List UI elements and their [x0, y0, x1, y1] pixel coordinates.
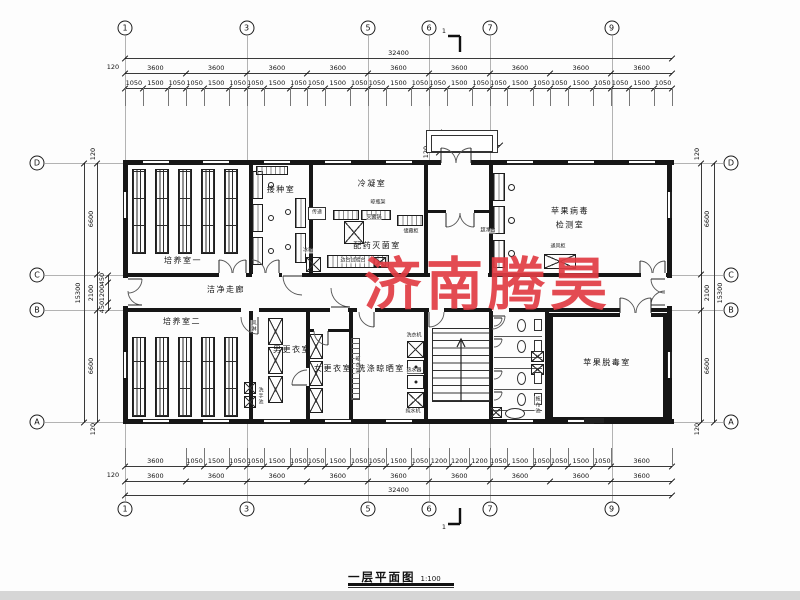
door-arc — [651, 291, 665, 305]
grid-bubble-top: 7 — [483, 21, 498, 36]
cistern — [534, 319, 542, 331]
window — [507, 160, 533, 165]
dim-value: 1050 — [169, 80, 186, 87]
dim-extension — [449, 448, 450, 466]
dim-extension — [429, 88, 430, 106]
watermark-text: 济南腾昊 — [364, 257, 612, 314]
dim-extension — [429, 448, 430, 466]
grid-bubble-top: 9 — [604, 21, 619, 36]
equipment-box — [407, 392, 424, 408]
dim-extension — [593, 88, 594, 106]
dim-value: 120 — [107, 472, 119, 479]
drawing-scale: 1:100 — [421, 575, 441, 583]
dim-line — [84, 163, 85, 422]
dim-value: 3600 — [208, 473, 225, 480]
dim-value: 3600 — [633, 65, 650, 72]
wall — [424, 311, 428, 421]
dim-value: 120 — [107, 64, 119, 71]
dim-value: 1200 — [471, 458, 488, 465]
dim-value: 1050 — [551, 458, 568, 465]
wall — [125, 273, 219, 277]
fume-hood-label: 通风柜 — [550, 245, 565, 250]
door-arc — [494, 392, 502, 400]
dim-extension — [411, 88, 412, 106]
grid-bubble-bottom: 1 — [118, 502, 133, 517]
title-block: 一层平面图1:100 — [348, 566, 441, 585]
dim-value: 3600 — [147, 473, 164, 480]
dim-value: 3600 — [390, 65, 407, 72]
dim-value: 3600 — [147, 65, 164, 72]
dim-value: 1050 — [551, 80, 568, 87]
dim-value: 15300 — [717, 282, 724, 303]
wall — [427, 210, 446, 213]
grid-bubble-right: A — [724, 415, 739, 430]
dim-value: 1050 — [229, 80, 246, 87]
dim-line — [125, 58, 672, 59]
dim-value: 1050 — [594, 80, 611, 87]
door-arc — [233, 260, 246, 273]
cistern — [534, 340, 542, 352]
section-marker-label: 1 — [442, 524, 446, 531]
dim-value: 2100 — [704, 284, 711, 301]
dim-value: 3600 — [390, 473, 407, 480]
dim-value: 3600 — [451, 65, 468, 72]
room-label-clean-corridor: 洁净走廊 — [207, 283, 245, 297]
grid-bubble-right: D — [724, 156, 739, 171]
dim-extension — [507, 88, 508, 106]
bottle-rack-label: 晾瓶架 — [370, 201, 385, 206]
room-label-culture-room-2: 培养室二 — [163, 315, 201, 329]
bench — [493, 173, 505, 201]
bench — [397, 215, 423, 226]
window — [386, 160, 412, 165]
shelf-rack — [132, 337, 146, 417]
dim-extension — [143, 88, 144, 106]
equipment-box — [244, 396, 256, 408]
wall — [310, 329, 314, 332]
section-cut-marker-top — [448, 36, 460, 52]
dim-value: 3600 — [329, 473, 346, 480]
dim-extension — [204, 448, 205, 466]
dim-value: 1200 — [451, 458, 468, 465]
door-arc — [128, 279, 142, 293]
dim-value: 3600 — [573, 473, 590, 480]
equipment-box — [309, 334, 323, 359]
dim-value: 1050 — [369, 80, 386, 87]
dim-value: 1050 — [229, 458, 246, 465]
dim-value: 1050 — [351, 458, 368, 465]
stool — [285, 244, 291, 250]
door-arc — [620, 298, 635, 313]
dim-value: 3600 — [329, 65, 346, 72]
dim-line — [125, 88, 672, 89]
dim-extension — [629, 88, 630, 106]
window — [629, 160, 655, 165]
dim-extension — [550, 88, 551, 106]
grid-bubble-top: 3 — [239, 21, 254, 36]
dim-extension — [125, 88, 126, 106]
door-arc — [494, 339, 502, 347]
dim-value: 6600 — [88, 358, 95, 375]
dim-extension — [507, 448, 508, 466]
shelf-rack — [178, 337, 192, 417]
section-cut-marker-bottom — [448, 508, 460, 524]
shelf-rack — [178, 169, 192, 254]
dim-value: 1050 — [412, 458, 429, 465]
toilet — [517, 340, 526, 353]
window — [325, 419, 351, 424]
dim-value: 6600 — [704, 358, 711, 375]
door-arc — [653, 261, 665, 273]
window — [264, 160, 290, 165]
door-arc — [128, 291, 142, 305]
bench — [333, 210, 359, 220]
dim-value: 1500 — [208, 458, 225, 465]
dim-value: 1500 — [512, 80, 529, 87]
dim-value: 1500 — [269, 458, 286, 465]
washing-machine-label: 洗衣机 — [406, 334, 421, 339]
room-label-mens-changing-room: 男更衣室 — [273, 343, 311, 357]
dim-value: 1050 — [186, 80, 203, 87]
dim-value: 1050 — [612, 80, 629, 87]
stool — [508, 217, 515, 224]
window-sill — [584, 418, 604, 423]
room-label-culture-room-1: 培养室一 — [164, 254, 202, 268]
dim-extension — [672, 448, 673, 466]
dim-line — [125, 73, 672, 74]
dim-extension — [672, 88, 673, 106]
grid-bubble-right: C — [724, 268, 739, 283]
dim-value: 120 — [694, 423, 701, 435]
dim-value: 1050 — [369, 458, 386, 465]
dim-extension — [264, 88, 265, 106]
equipment-box — [309, 388, 323, 413]
pure-water-label: 纯水机 — [405, 410, 420, 415]
dim-value: 1050 — [308, 458, 325, 465]
clean-bench-label: 超净台 — [480, 229, 495, 234]
dim-value: 1050 — [490, 80, 507, 87]
dim-value: 1050 — [473, 80, 490, 87]
grid-line-right — [672, 163, 723, 164]
dim-value: 3600 — [633, 458, 650, 465]
door-arc — [266, 260, 279, 273]
stool — [268, 215, 274, 221]
bench — [256, 166, 288, 175]
room-label-inoculation-room: 接种室 — [267, 183, 296, 197]
dim-value: 1050 — [655, 80, 672, 87]
window — [386, 419, 412, 424]
wall — [123, 160, 128, 278]
dim-value: 1500 — [512, 458, 529, 465]
partition — [494, 336, 542, 337]
dim-value: 1050 — [126, 80, 143, 87]
bench — [252, 237, 263, 265]
dim-value: 1050 — [429, 80, 446, 87]
dim-value: 1500 — [573, 458, 590, 465]
window — [143, 160, 169, 165]
grid-bubble-top: 1 — [118, 21, 133, 36]
dim-value: 3600 — [208, 65, 225, 72]
grid-bubble-left: D — [30, 156, 45, 171]
dim-value: 1500 — [390, 80, 407, 87]
dim-value: 3600 — [451, 473, 468, 480]
dim-line — [125, 481, 672, 482]
side-bench-label: 边台试验台 — [340, 259, 365, 264]
door-arc — [283, 276, 302, 295]
water-heater-box — [407, 375, 424, 389]
storage-cabinet-label: 储藏柜 — [403, 230, 418, 235]
dim-value: 1050 — [594, 458, 611, 465]
grid-bubble-top: 5 — [361, 21, 376, 36]
dim-extension — [125, 448, 126, 466]
dim-value: 1050 — [533, 458, 550, 465]
dim-value: 1200 — [99, 284, 106, 301]
dim-extension — [533, 88, 534, 106]
stool — [285, 209, 291, 215]
door-arc — [460, 213, 474, 227]
dim-value: 1200 — [431, 458, 448, 465]
dim-value: 120 — [90, 148, 97, 160]
dim-extension — [611, 448, 612, 466]
dim-line — [125, 466, 672, 467]
dim-extension — [204, 88, 205, 106]
dim-value: 1500 — [147, 80, 164, 87]
grid-bubble-bottom: 5 — [361, 502, 376, 517]
air-shower-label: 风淋 — [251, 320, 256, 332]
wall — [651, 308, 672, 312]
dim-value: 1500 — [329, 80, 346, 87]
dim-extension — [307, 88, 308, 106]
partition — [494, 389, 542, 390]
dim-extension — [186, 88, 187, 106]
door-arc — [494, 318, 502, 326]
dim-value: 450 — [99, 273, 106, 285]
door-arc — [331, 288, 350, 307]
dim-value: 3600 — [269, 65, 286, 72]
title-underline — [348, 583, 454, 586]
dim-extension — [568, 448, 569, 466]
wash-basin — [505, 408, 525, 419]
dim-value: 3600 — [573, 65, 590, 72]
dim-value: 32400 — [388, 50, 409, 57]
equipment-box — [268, 318, 283, 345]
window — [667, 352, 672, 378]
wall — [279, 273, 282, 277]
door-arc — [494, 371, 502, 379]
wall — [666, 273, 672, 277]
grid-bubble-top: 6 — [422, 21, 437, 36]
toilet — [517, 372, 526, 385]
dim-value: 120 — [694, 148, 701, 160]
dim-value: 3600 — [633, 473, 650, 480]
dim-value: 3600 — [147, 458, 164, 465]
door-arc — [651, 279, 665, 293]
wall — [125, 308, 241, 312]
dim-value: 1500 — [633, 80, 650, 87]
equipment-box — [531, 351, 544, 362]
window — [143, 419, 169, 424]
dim-extension — [490, 88, 491, 106]
cistern — [534, 372, 542, 384]
bench — [252, 204, 263, 232]
dim-extension — [611, 88, 612, 106]
dim-value: 1050 — [533, 80, 550, 87]
dim-value: 3600 — [512, 65, 529, 72]
title-underline-2 — [348, 587, 454, 588]
room-label-apple-virus-test-room: 苹果病毒检测室 — [551, 205, 589, 234]
staircase — [432, 328, 490, 402]
dim-extension — [325, 88, 326, 106]
dim-extension — [447, 88, 448, 106]
dim-value: 6600 — [88, 211, 95, 228]
shelf-rack — [201, 169, 215, 254]
shelf-rack — [155, 337, 169, 417]
wall — [259, 308, 330, 312]
shelf-rack — [155, 169, 169, 254]
room-label-washing-drying-room: 洗涤晾晒室 — [357, 362, 405, 376]
footer-strip — [0, 591, 800, 600]
window — [203, 419, 229, 424]
drawing-title: 一层平面图 — [348, 570, 416, 584]
dim-value: 1050 — [490, 458, 507, 465]
shelf-rack — [224, 337, 238, 417]
floor-plan-canvas: 135679135679DCBADCBA32400360036003600360… — [0, 0, 800, 600]
window — [123, 192, 128, 218]
window — [507, 419, 533, 424]
dim-value: 1050 — [186, 458, 203, 465]
grid-bubble-bottom: 7 — [483, 502, 498, 517]
window — [264, 419, 290, 424]
door-arc — [636, 298, 651, 313]
dim-value: 1050 — [290, 80, 307, 87]
section-marker-label: 1 — [442, 28, 446, 35]
window — [667, 192, 672, 218]
window — [123, 352, 128, 378]
grid-bubble-left: B — [30, 303, 45, 318]
dim-value: 15300 — [75, 282, 82, 303]
equipment-box — [306, 257, 321, 272]
dim-value: 1050 — [247, 80, 264, 87]
water-heater-label: 热水器 — [406, 369, 421, 374]
dim-extension — [168, 88, 169, 106]
wall — [545, 311, 549, 421]
dim-value: 1500 — [269, 80, 286, 87]
mop-sink-label: 拖布池 — [535, 396, 540, 414]
dim-extension — [469, 448, 470, 466]
dim-value: 3600 — [269, 473, 286, 480]
shelf-rack — [132, 169, 146, 254]
dim-extension — [247, 88, 248, 106]
dim-value: 1050 — [247, 458, 264, 465]
wall — [328, 329, 352, 332]
dim-value: 6600 — [704, 211, 711, 228]
grid-bubble-left: A — [30, 415, 45, 430]
dim-extension — [568, 88, 569, 106]
dim-value: 1500 — [208, 80, 225, 87]
bench — [295, 198, 306, 228]
dim-extension — [472, 88, 473, 106]
dim-extension — [386, 448, 387, 466]
stool — [508, 184, 515, 191]
door-arc — [219, 260, 232, 273]
grid-bubble-right: B — [724, 303, 739, 318]
wall — [549, 313, 553, 421]
dim-value: 1050 — [412, 80, 429, 87]
dim-value: 3600 — [512, 473, 529, 480]
dim-extension — [350, 88, 351, 106]
toilet — [517, 393, 526, 406]
dim-value: 1050 — [308, 80, 325, 87]
sterilizer-label: 灭菌锅 — [366, 216, 381, 221]
shelf-rack — [224, 169, 238, 254]
grid-bubble-bottom: 3 — [239, 502, 254, 517]
grid-line-right — [672, 310, 723, 311]
equipment-box — [244, 382, 256, 394]
dim-extension — [325, 448, 326, 466]
equipment-box — [490, 407, 502, 418]
grid-bubble-bottom: 6 — [422, 502, 437, 517]
door-arc — [640, 261, 652, 273]
entrance-canopy-inner — [431, 135, 493, 152]
grid-bubble-left: C — [30, 268, 45, 283]
fridge-label: 冰箱 — [303, 249, 313, 254]
drying-rack-label: 晾衣架 — [355, 356, 360, 374]
dim-extension — [386, 88, 387, 106]
toilet — [517, 319, 526, 332]
door-arc — [446, 213, 460, 227]
dim-value: 1500 — [451, 80, 468, 87]
dim-line — [125, 495, 672, 496]
dim-value: 1500 — [390, 458, 407, 465]
dim-value: 1050 — [290, 458, 307, 465]
dim-value: 450 — [99, 301, 106, 313]
window — [568, 160, 594, 165]
dim-extension — [654, 88, 655, 106]
hand-wash-label: 洗手池 — [258, 387, 263, 405]
room-label-womens-changing-room: 女更衣室 — [314, 362, 352, 376]
dim-extension — [264, 448, 265, 466]
dim-extension — [229, 88, 230, 106]
stool — [268, 248, 274, 254]
pass-window-label: 传递 — [312, 211, 322, 216]
room-label-condensing-room: 冷凝室 — [358, 177, 387, 191]
window — [203, 160, 229, 165]
dim-extension — [368, 88, 369, 106]
wall — [474, 210, 490, 213]
equipment-box — [407, 341, 424, 358]
bench — [252, 171, 263, 199]
dim-value: 1500 — [573, 80, 590, 87]
room-label-apple-detox-room: 苹果脱毒室 — [583, 356, 631, 370]
window — [325, 160, 351, 165]
shelf-rack — [201, 337, 215, 417]
equipment-box — [268, 376, 283, 403]
dim-value: 2100 — [88, 284, 95, 301]
dim-value: 120 — [90, 423, 97, 435]
door-arc — [292, 370, 307, 385]
dim-extension — [290, 88, 291, 106]
dim-value: 1050 — [351, 80, 368, 87]
grid-bubble-bottom: 9 — [604, 502, 619, 517]
wall — [667, 160, 672, 278]
dim-value: 32400 — [388, 487, 409, 494]
dim-value: 1500 — [329, 458, 346, 465]
